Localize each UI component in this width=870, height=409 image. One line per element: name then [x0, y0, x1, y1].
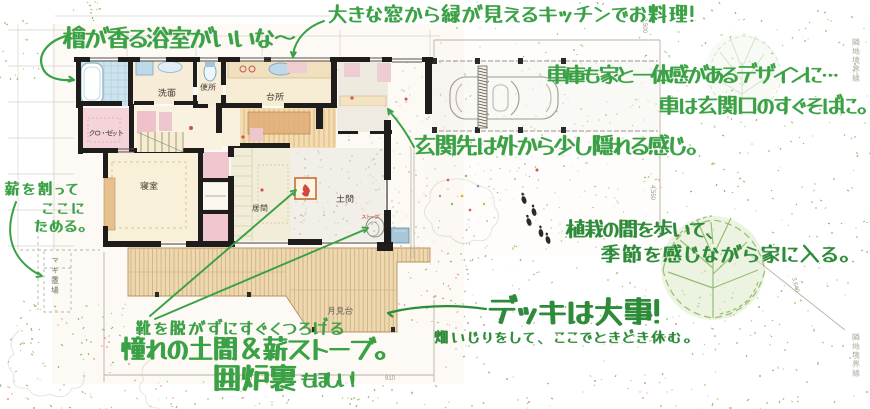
svg-text:3,640: 3,640 — [790, 277, 800, 294]
svg-text:910: 910 — [385, 376, 396, 382]
svg-text:4,550: 4,550 — [649, 185, 655, 201]
